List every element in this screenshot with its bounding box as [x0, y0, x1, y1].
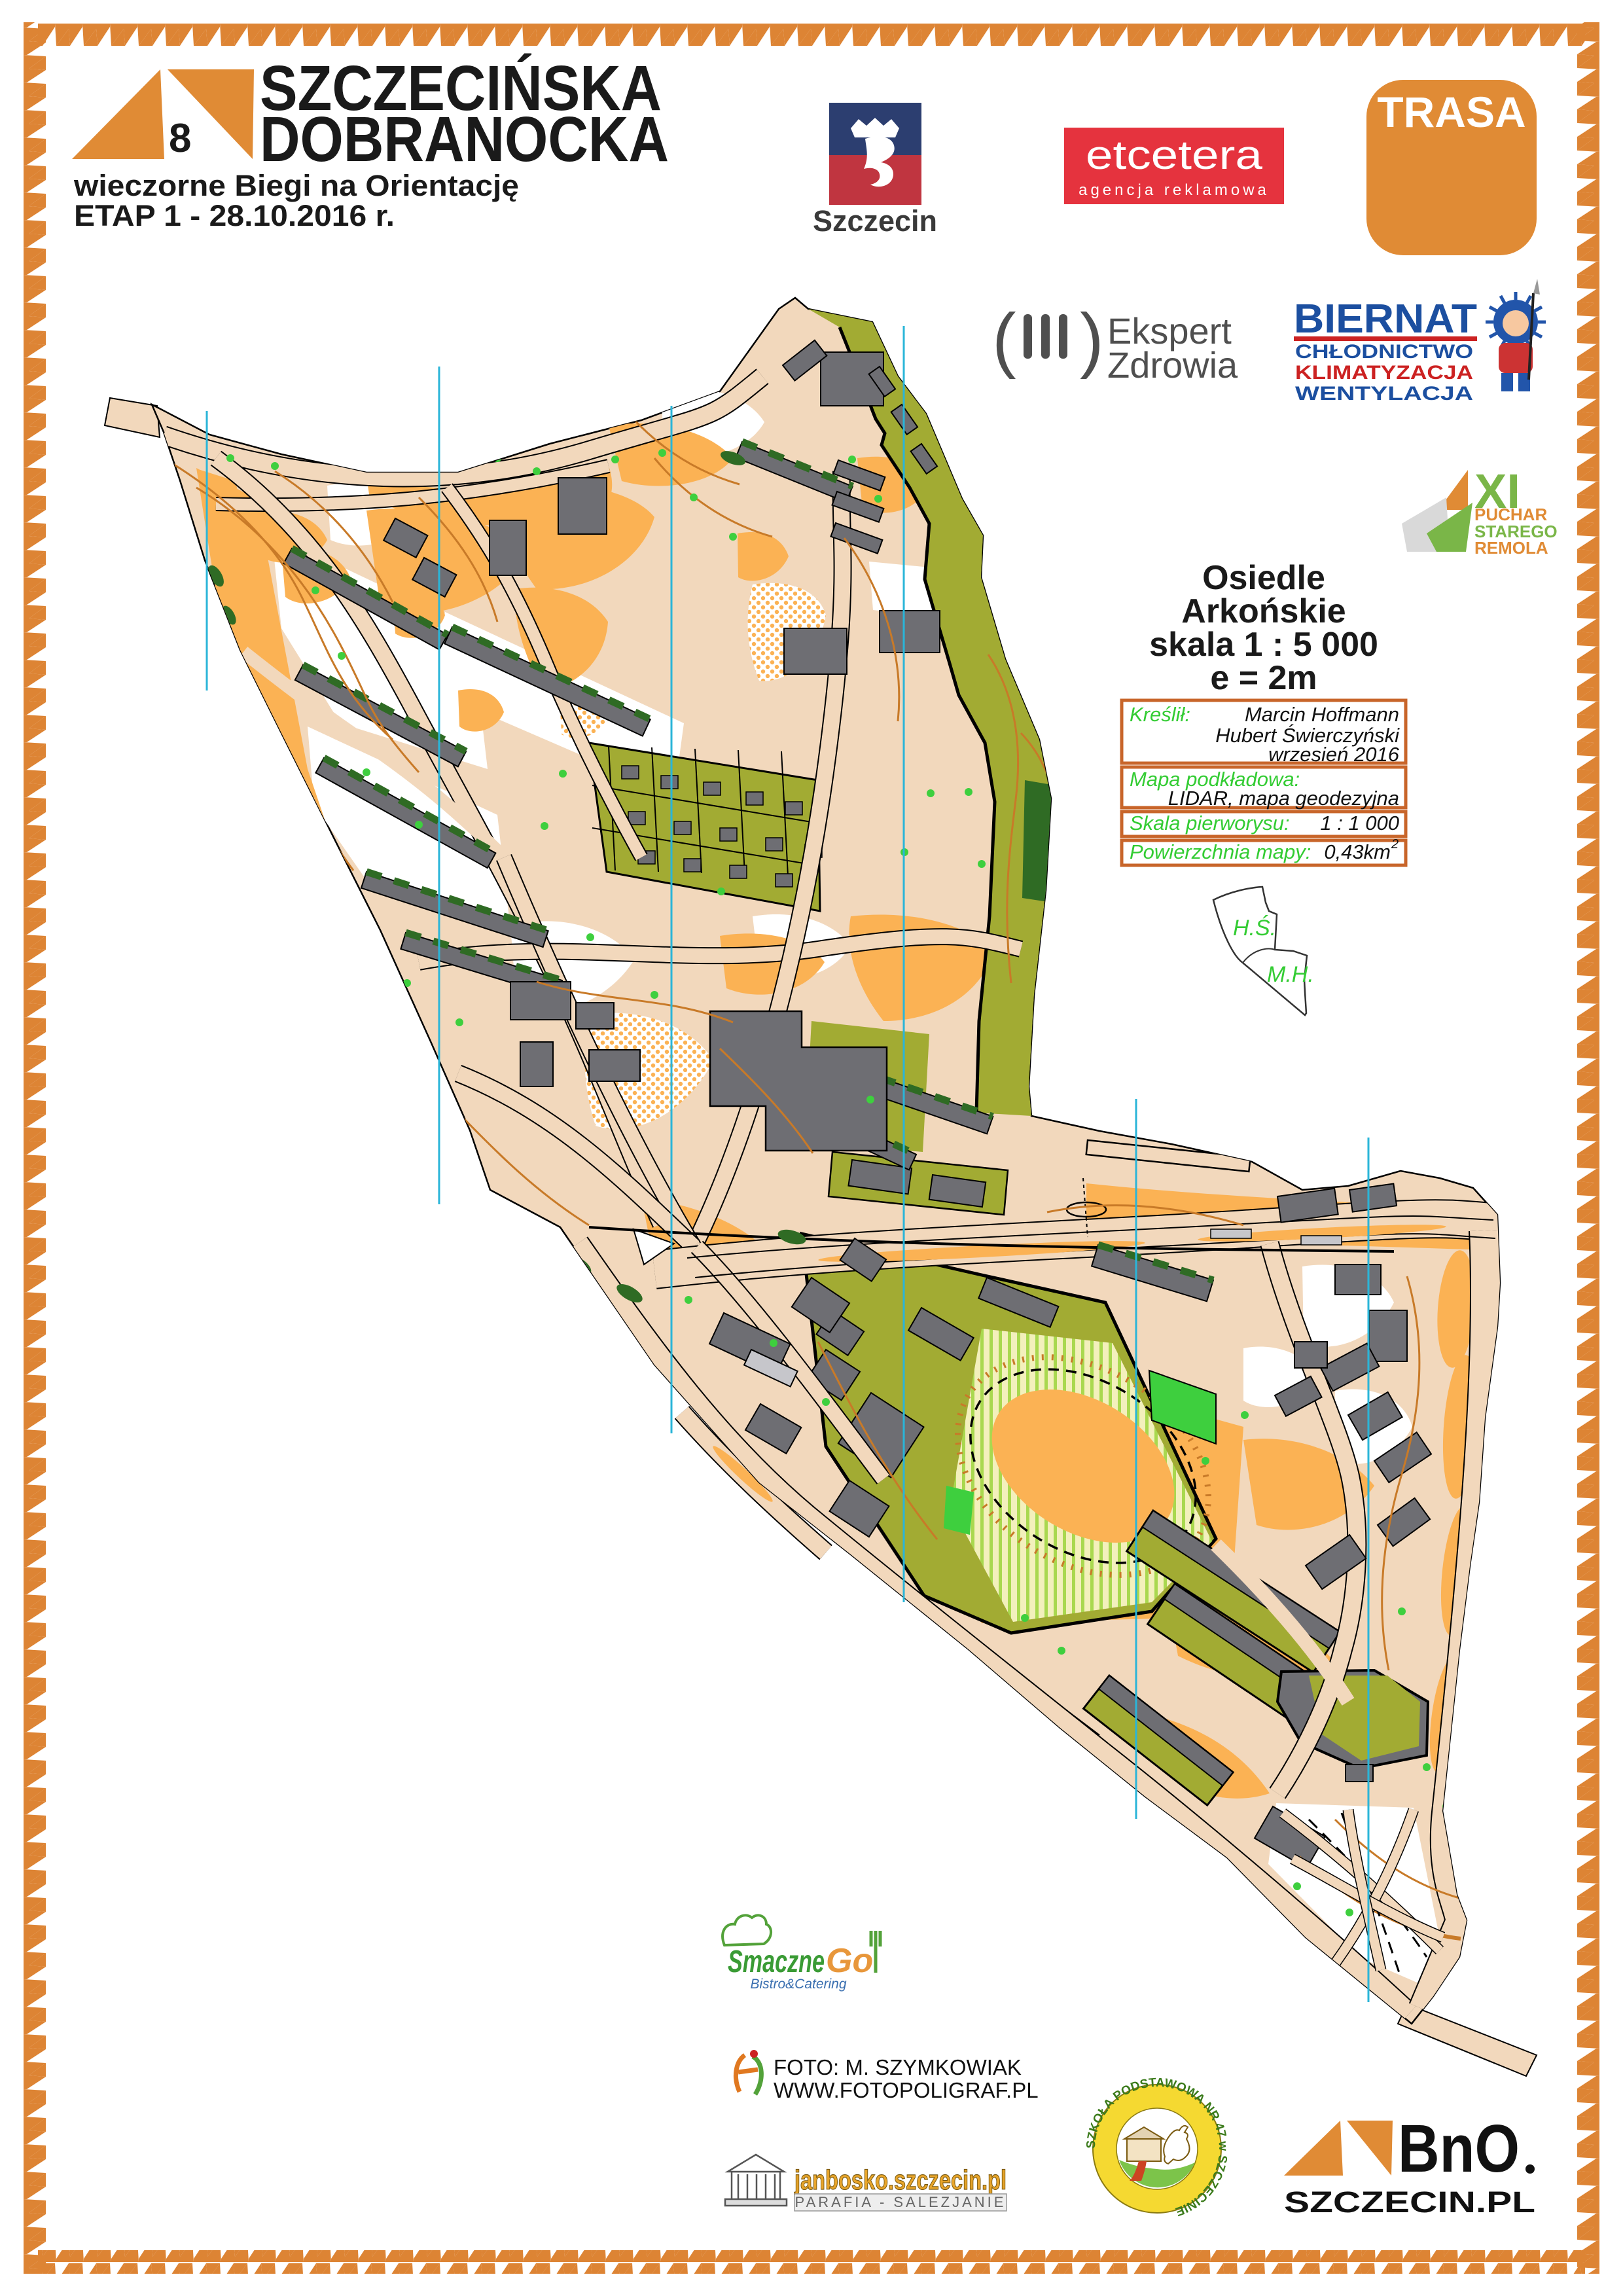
svg-text:PARAFIA - SALEZJANIE: PARAFIA - SALEZJANIE [795, 2194, 1007, 2210]
svg-text:Kreślił:: Kreślił: [1130, 703, 1190, 726]
svg-text:Skala pierworysu:: Skala pierworysu: [1130, 812, 1290, 834]
svg-text:agencja reklamowa: agencja reklamowa [1079, 181, 1270, 199]
svg-text:Powierzchnia mapy:: Powierzchnia mapy: [1130, 840, 1311, 863]
svg-text:Arkońskie: Arkońskie [1181, 592, 1346, 630]
svg-text:e = 2m: e = 2m [1210, 659, 1317, 697]
svg-text:CHŁODNICTWO: CHŁODNICTWO [1295, 341, 1473, 363]
svg-text:Osiedle: Osiedle [1202, 559, 1325, 597]
svg-text:wieczorne Biegi na Orientację: wieczorne Biegi na Orientację [73, 169, 519, 202]
svg-text:Szczecin: Szczecin [813, 204, 937, 238]
svg-text:LIDAR, mapa geodezyjna: LIDAR, mapa geodezyjna [1168, 787, 1399, 810]
svg-text:Go: Go [826, 1942, 873, 1980]
svg-text:M.H.: M.H. [1267, 962, 1314, 987]
svg-text:BIERNAT: BIERNAT [1294, 296, 1477, 342]
svg-text:janbosko.szczecin.pl: janbosko.szczecin.pl [794, 2164, 1007, 2195]
svg-text:Zdrowia: Zdrowia [1107, 344, 1238, 386]
svg-text:etcetera: etcetera [1086, 133, 1263, 178]
svg-text:ETAP 1 - 28.10.2016 r.: ETAP 1 - 28.10.2016 r. [74, 199, 395, 232]
svg-text:8: 8 [169, 116, 191, 161]
svg-text:TRASA: TRASA [1377, 88, 1525, 136]
svg-text:Smaczne: Smaczne [728, 1945, 825, 1979]
svg-text:WWW.FOTOPOLIGRAF.PL: WWW.FOTOPOLIGRAF.PL [774, 2078, 1039, 2102]
svg-text:1 : 1 000: 1 : 1 000 [1320, 812, 1399, 834]
svg-text:wrzesień 2016: wrzesień 2016 [1268, 743, 1400, 766]
svg-text:skala 1 : 5 000: skala 1 : 5 000 [1149, 626, 1378, 664]
svg-text:2: 2 [1391, 837, 1399, 852]
svg-text:(: ( [992, 299, 1016, 380]
svg-text:0,43km: 0,43km [1324, 840, 1391, 863]
svg-text:H.Ś.: H.Ś. [1233, 915, 1276, 941]
svg-text:): ) [1080, 299, 1104, 380]
svg-text:WENTYLACJA: WENTYLACJA [1295, 383, 1473, 404]
svg-text:KLIMATYZACJA: KLIMATYZACJA [1295, 362, 1473, 384]
svg-text:DOBRANOCKA: DOBRANOCKA [260, 103, 669, 175]
svg-text:SZCZECIN.PL: SZCZECIN.PL [1284, 2185, 1535, 2219]
svg-text:Marcin Hoffmann: Marcin Hoffmann [1245, 703, 1399, 726]
svg-text:BnO: BnO [1398, 2111, 1520, 2186]
svg-text:REMOLA: REMOLA [1474, 538, 1548, 558]
svg-text:Bistro&Catering: Bistro&Catering [750, 1977, 846, 1992]
svg-text:FOTO: M. SZYMKOWIAK: FOTO: M. SZYMKOWIAK [774, 2055, 1022, 2079]
